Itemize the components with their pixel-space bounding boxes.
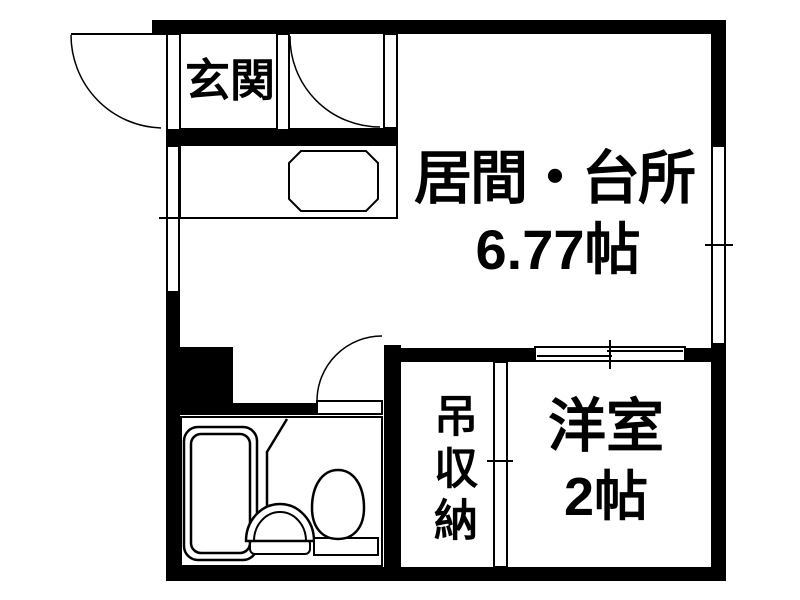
washroom-door-arc [317, 336, 382, 401]
kitchen-sink-icon [289, 151, 378, 211]
wall-washroom-north [233, 403, 316, 415]
partition-storage [494, 362, 507, 567]
toilet-tank [314, 538, 378, 555]
western-room-label: 洋室 [506, 397, 706, 458]
toilet-icon [312, 470, 364, 539]
closet-door-arc [290, 36, 380, 127]
wall-south-top-right [685, 348, 711, 362]
washroom-door-panel [317, 401, 382, 414]
western-room-size: 2帖 [506, 469, 706, 526]
wall-washroom-east [384, 345, 401, 581]
wall-utility-mass [180, 347, 233, 415]
wall-closet-east [384, 34, 397, 128]
floorplan: 玄関 居間・台所 6.77帖 吊収納 洋室 2帖 [0, 0, 800, 600]
wall-right-lower [711, 344, 726, 581]
wall-south-top-left [401, 348, 535, 362]
living-kitchen-room-size: 6.77帖 [400, 221, 716, 280]
hanging-storage-label: 吊収納 [420, 393, 474, 563]
wall-right-upper [711, 20, 726, 146]
wall-left [166, 292, 180, 581]
wall-bottom [166, 567, 726, 581]
living-kitchen-room-label: 居間・台所 [396, 149, 712, 210]
wall-top [152, 20, 726, 34]
entrance-room-label: 玄関 [170, 57, 290, 104]
bath-partition [267, 419, 287, 506]
entrance-door-arc [71, 35, 161, 128]
